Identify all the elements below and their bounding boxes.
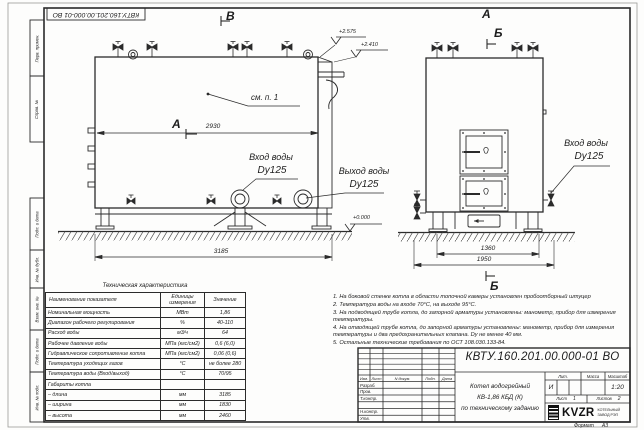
- drawing-sheet: КВТУ.160.201.00.000-01 ВО Перв. примен. …: [0, 0, 644, 430]
- kvzr-sub-line1: КОТЕЛЬНЫЙ: [598, 408, 621, 412]
- outlet-dn: Dy125: [340, 179, 388, 190]
- col-list: Лист: [370, 376, 383, 381]
- cut-letter-a: А: [172, 118, 181, 131]
- technical-notes: 1. На боковой стенке котла в области топ…: [333, 294, 630, 348]
- margin-stamp-label: Справ. №: [35, 99, 40, 118]
- col-sign: Подп.: [422, 376, 439, 381]
- see-note-label: см. п. 1: [251, 94, 278, 103]
- margin-stamp: Инв. № подл.: [30, 372, 44, 422]
- scale-value: 1:20: [605, 384, 630, 391]
- lit-value: И: [545, 384, 557, 391]
- spec-row: Расход водым3/ч64: [46, 328, 246, 338]
- product-title-line: Котел водогрейный: [456, 383, 544, 390]
- margin-stamp-label: Инв. № дубл.: [35, 256, 40, 282]
- margin-stamp: Перв. примен.: [30, 20, 44, 76]
- spec-table-title: Техническая характеристика: [45, 283, 245, 290]
- spec-header-row: Наименование показателя Единицы измерени…: [46, 293, 246, 308]
- margin-stamp: Справ. №: [30, 76, 44, 142]
- kvzr-logo-mark: [548, 405, 559, 420]
- view-letter-a: А: [482, 8, 491, 21]
- view-letter-v: В: [226, 10, 235, 23]
- drain-valve: [207, 195, 215, 204]
- leader-lines: [207, 93, 610, 198]
- spec-col-value: Значение: [205, 293, 246, 308]
- margin-stamp: Подп. и дата: [30, 330, 44, 372]
- spec-row: – высотамм2460: [46, 410, 246, 420]
- elevation-top: +2.575: [339, 29, 356, 35]
- front-view-linework: [398, 43, 575, 242]
- spec-row: Гидравлическое сопротивление котлаМПа (к…: [46, 349, 246, 359]
- margin-stamp: Взам. инв. №: [30, 288, 44, 330]
- top-valve: [242, 42, 252, 58]
- elevation-mid: +2.410: [361, 42, 378, 48]
- margin-stamp-label: Инв. № подл.: [35, 384, 40, 410]
- company-logo: KVZR КОТЕЛЬНЫЙ ЗАВОД РЭП: [548, 405, 628, 420]
- row-prov: Пров.: [360, 389, 371, 394]
- note-item: 1. На боковой стенке котла в области топ…: [333, 294, 630, 301]
- inlet-dn-front: Dy125: [564, 151, 614, 162]
- designation-top: КВТУ.160.201.00.000-01 ВО: [47, 8, 145, 20]
- spec-row: Рабочее давление водыМПа (кгс/см2)0,6 (6…: [46, 338, 246, 348]
- col-date: Дата: [439, 376, 455, 381]
- spec-row: – длинамм3185: [46, 390, 246, 400]
- row-razrab: Разраб.: [360, 383, 376, 388]
- product-title: Котел водогрейный КВ-1,86 КБД (К) по тех…: [456, 374, 544, 420]
- lower-door: [460, 176, 508, 211]
- spec-row: – ширинамм1830: [46, 400, 246, 410]
- sheets-cell: Листов 2: [587, 396, 630, 402]
- top-valve: [228, 42, 238, 58]
- outlet-flange-side: [294, 190, 312, 208]
- mass-label: Масса: [581, 374, 605, 379]
- inlet-flange-side: [231, 190, 249, 208]
- top-valve: [432, 43, 442, 59]
- side-view-linework: [58, 42, 352, 241]
- rear-duct: [318, 62, 332, 208]
- drain-valve: [273, 195, 281, 204]
- note-item: 3. На подводящей трубе котла, до запорно…: [333, 310, 630, 324]
- boiler-body-side: [95, 57, 318, 208]
- cut-letter-b-top: Б: [494, 27, 503, 40]
- sheets-value: 2: [618, 396, 621, 402]
- spec-row: Температура воды (Вход/выход)°С70/95: [46, 369, 246, 379]
- drain-valve: [127, 195, 135, 204]
- top-valve: [448, 43, 458, 59]
- scale-label: Масштаб: [605, 374, 630, 379]
- title-block-designation: КВТУ.160.201.00.000-01 ВО: [456, 351, 629, 363]
- note-item: 5. Остальные технические требования по О…: [333, 340, 630, 347]
- kvzr-logo-text: KVZR: [562, 407, 595, 419]
- spec-row: Диапазон рабочего регулирования%40-110: [46, 318, 246, 328]
- cut-letter-b-bottom: Б: [490, 280, 499, 293]
- inlet-dn: Dy125: [248, 165, 296, 176]
- col-izm: Изм.: [358, 376, 370, 381]
- side-valve: [548, 191, 554, 206]
- lit-label: Лит.: [545, 374, 581, 379]
- sheet-cell: Лист 1: [545, 396, 587, 402]
- sheet-value: 1: [573, 396, 576, 402]
- kvzr-sub-line2: ЗАВОД РЭП: [598, 413, 621, 417]
- spec-table: Наименование показателя Единицы измерени…: [45, 292, 246, 421]
- spec-col-name: Наименование показателя: [46, 293, 161, 308]
- dim-1360: 1360: [473, 245, 503, 252]
- ground-hatch: [398, 233, 575, 242]
- margin-stamp-label: Подп. и дата: [35, 338, 40, 364]
- spec-row: Габариты котла: [46, 380, 246, 390]
- margin-stamp: Подп. и дата: [30, 198, 44, 250]
- row-utv: Утв.: [360, 416, 370, 421]
- product-title-line: по техническому заданию: [456, 405, 544, 412]
- inlet-label-front: Вход воды: [556, 139, 616, 149]
- sheet-label: Лист: [556, 396, 567, 401]
- row-nkontr: Н.контр.: [360, 409, 378, 414]
- spec-row: Номинальная мощностьМВт1,86: [46, 308, 246, 318]
- format-label: Формат: [574, 423, 594, 429]
- inlet-label: Вход воды: [242, 153, 300, 163]
- upper-door: [460, 130, 508, 174]
- margin-stamp: Инв. № дубл.: [30, 250, 44, 288]
- note-item: 4. На отводящей трубе котла, до запорной…: [333, 325, 630, 339]
- row-tkontr: Т.контр.: [360, 396, 377, 401]
- ground-hatch: [58, 232, 352, 241]
- col-doc: N докум.: [383, 376, 422, 381]
- margin-stamp-label: Подп. и дата: [35, 211, 40, 237]
- dim-3185: 3185: [198, 248, 244, 255]
- format-label-row: Формат А3: [556, 423, 626, 429]
- top-valve: [512, 43, 522, 59]
- outlet-label: Выход воды: [332, 167, 396, 177]
- kvzr-logo-subtext: КОТЕЛЬНЫЙ ЗАВОД РЭП: [598, 408, 621, 417]
- top-valve: [282, 42, 292, 58]
- spec-col-units: Единицы измерения: [161, 293, 205, 308]
- dim-2930: 2930: [190, 123, 236, 130]
- sheets-label: Листов: [596, 396, 611, 401]
- format-value: А3: [602, 423, 608, 429]
- spec-row: Температура уходящих газов°Сне более 280: [46, 359, 246, 369]
- top-valve: [528, 43, 538, 59]
- margin-stamp-label: Взам. инв. №: [35, 296, 40, 322]
- top-valve: [113, 42, 123, 58]
- product-title-line: КВ-1,86 КБД (К): [456, 394, 544, 401]
- dim-1950: 1950: [468, 256, 500, 263]
- elevation-zero: +0.000: [353, 215, 370, 221]
- margin-stamp-label: Перв. примен.: [35, 34, 40, 62]
- elevation-marks: [320, 37, 388, 231]
- note-item: 2. Температура воды на входе 70°С, на вы…: [333, 302, 630, 309]
- top-valve: [147, 42, 157, 58]
